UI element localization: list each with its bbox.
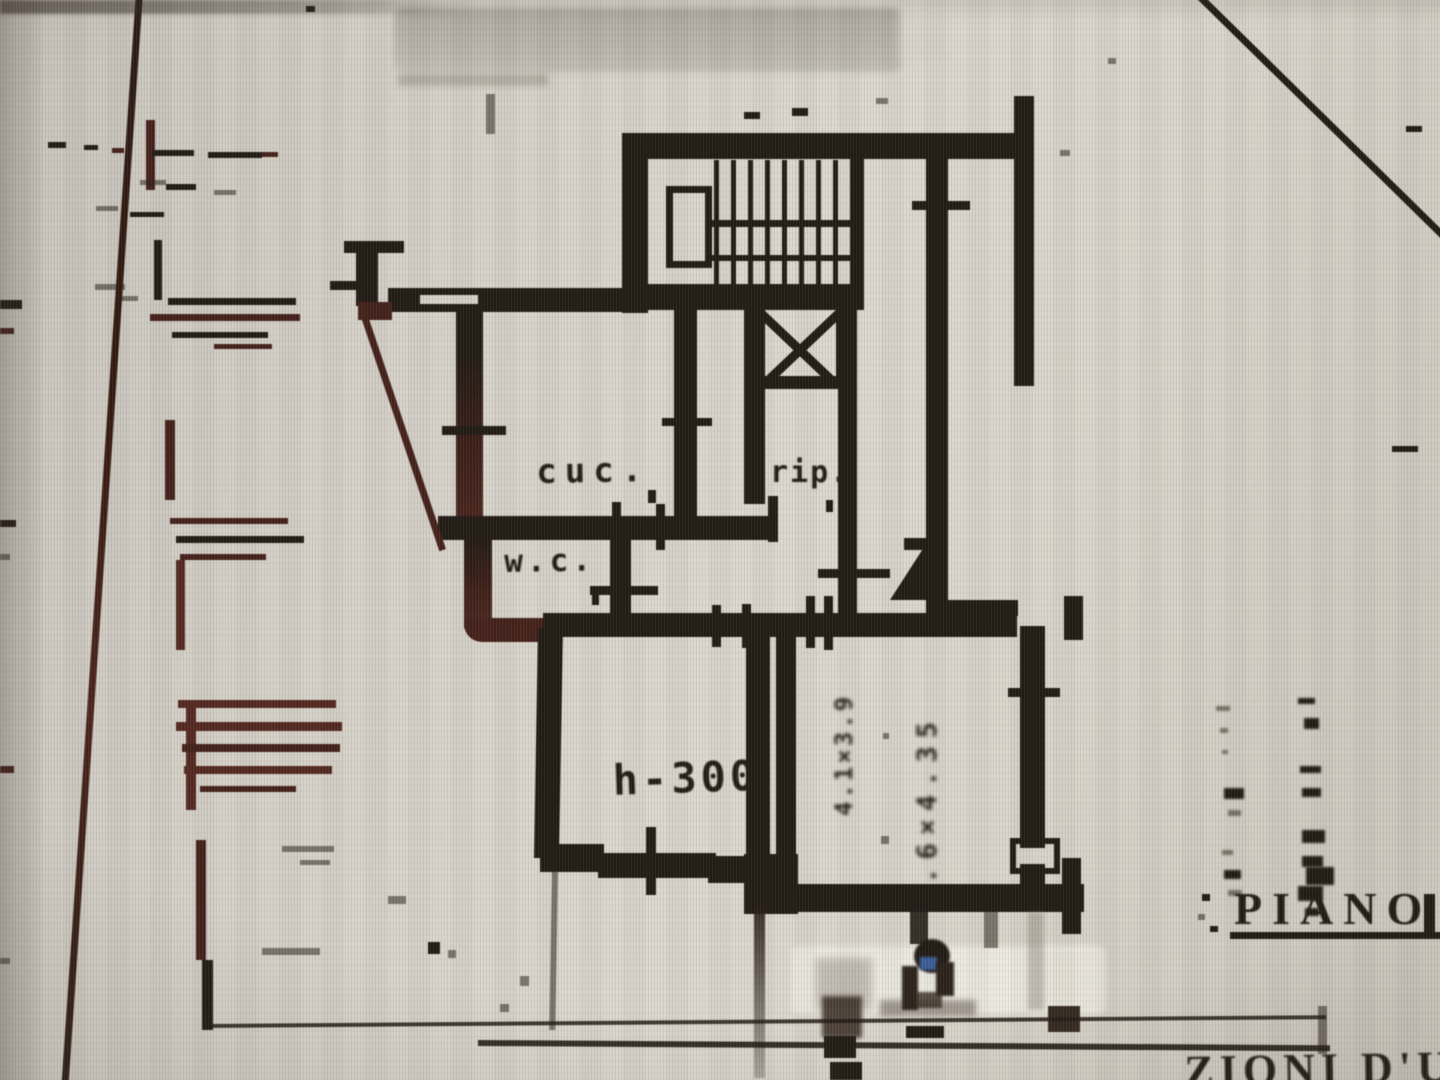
door-tick xyxy=(768,496,778,542)
margin-glyph xyxy=(1302,856,1323,867)
scratch-streak xyxy=(176,536,304,543)
door-tick xyxy=(824,596,833,650)
speck xyxy=(744,112,760,119)
edge-dash xyxy=(0,520,16,527)
window-sill-box xyxy=(1010,838,1060,874)
stair-right-stringer xyxy=(850,158,864,286)
speck xyxy=(876,98,888,104)
edge-dash xyxy=(0,328,14,334)
door-tick xyxy=(818,569,890,578)
balcony-cap xyxy=(344,241,404,253)
margin-glyph xyxy=(1216,706,1230,711)
room-label-ripostiglio: rip. xyxy=(770,458,850,488)
blur-smudge xyxy=(398,74,548,86)
scratch-dash xyxy=(130,212,164,217)
leftline-blob xyxy=(176,560,185,650)
scratch-dash xyxy=(112,148,124,153)
person-collar-blue xyxy=(920,957,937,970)
vertical-annotation-right: 1.6×4.35 xyxy=(914,714,941,908)
margin-glyph xyxy=(1224,870,1241,879)
scratch-streak xyxy=(200,786,296,792)
scratch-dash xyxy=(214,190,236,195)
reflection-dark-blob xyxy=(822,996,862,1038)
sheet-title-piano: PIANO xyxy=(1234,886,1432,932)
scratch-streak xyxy=(182,744,340,752)
scratch-streak xyxy=(214,344,272,349)
sheet-left-border xyxy=(61,0,143,1080)
scratch-streak xyxy=(178,700,336,708)
vertical-annotation-left: 4.1×3.9 xyxy=(832,694,856,816)
shadow-column xyxy=(1028,912,1044,1010)
line-below-corner xyxy=(549,872,558,1030)
wc-right-wall xyxy=(610,518,631,626)
person-torso xyxy=(916,992,942,1008)
h300-bottom-wall xyxy=(540,844,604,872)
scratch-streak xyxy=(184,766,332,774)
stair-top-wall xyxy=(622,133,1018,159)
right-end-cap-wall xyxy=(1014,96,1034,386)
door-tick xyxy=(646,827,656,895)
piano-colon-mark xyxy=(1198,914,1205,920)
stair-landing-box xyxy=(666,186,712,268)
scratch-dash xyxy=(152,150,194,156)
edge-dash xyxy=(0,766,14,773)
speck xyxy=(262,948,320,955)
elevator-shaft-box xyxy=(756,302,844,386)
scratch-streak xyxy=(172,332,268,338)
stair-mid-landing-bar xyxy=(712,255,854,261)
edge-dash xyxy=(0,554,10,560)
scratch-dash xyxy=(282,846,334,852)
scratch-dash xyxy=(166,184,196,190)
margin-glyph xyxy=(1222,750,1228,754)
scratch-dash xyxy=(96,206,118,211)
speck xyxy=(520,976,529,986)
speck xyxy=(1392,446,1418,452)
bottom-blob xyxy=(830,1062,862,1080)
scratch-dash xyxy=(84,145,98,150)
comma-mark xyxy=(826,500,833,512)
door-swing-leaf xyxy=(890,544,926,600)
speck xyxy=(486,94,495,134)
leftline-blob xyxy=(165,420,175,500)
window-tick xyxy=(912,201,970,210)
height-annotation: h-300 xyxy=(612,755,760,802)
kitchen-left-wall xyxy=(456,308,483,536)
piano-colon-mark xyxy=(1210,926,1218,932)
margin-glyph xyxy=(1298,698,1315,704)
wall-stub xyxy=(984,912,998,948)
white-redaction-ext xyxy=(1040,950,1104,1008)
speck xyxy=(428,942,440,954)
speck xyxy=(1060,150,1070,156)
margin-glyph xyxy=(1302,788,1321,797)
bottom-right-cap xyxy=(1062,858,1081,934)
margin-glyph xyxy=(1228,810,1241,816)
scratch-streak xyxy=(150,314,300,321)
scratch-streak xyxy=(176,722,342,731)
scratch-dash xyxy=(140,180,166,185)
mid-wall-right-cap xyxy=(1064,596,1083,640)
blur-redaction-top xyxy=(394,8,902,72)
door-tick xyxy=(662,418,712,426)
window-tick xyxy=(1008,688,1060,697)
speck xyxy=(1406,126,1422,132)
door-tick xyxy=(590,586,658,595)
margin-glyph xyxy=(1300,766,1321,773)
scratch-dash xyxy=(300,860,330,865)
door-tick xyxy=(656,504,665,550)
wc-left-wall xyxy=(464,516,492,628)
margin-glyph xyxy=(1222,850,1233,855)
blur-redaction-top-ext xyxy=(898,12,950,64)
leftline-blob xyxy=(154,240,162,300)
speck xyxy=(448,950,456,958)
person-shoulder-right xyxy=(936,962,954,996)
speck xyxy=(792,108,808,116)
margin-glyph xyxy=(1220,728,1228,733)
leftline-blob xyxy=(202,960,213,1030)
room2-right-wall xyxy=(1020,626,1045,848)
room-label-wc: w.c. xyxy=(504,545,595,578)
dot-mark xyxy=(883,733,889,739)
h300-bottom-wall xyxy=(598,853,716,878)
leftline-blob xyxy=(196,840,206,960)
scratch-streak xyxy=(180,554,266,560)
sheet-bottom-line xyxy=(206,1015,1326,1028)
margin-glyph xyxy=(1302,830,1325,843)
door-tick xyxy=(806,596,815,648)
balcony-dash xyxy=(330,281,364,290)
leftline-blob xyxy=(186,700,196,810)
floor-plan-layer: cuc.rip.w.c.h-3004.1×3.91.6×4.35PIANOZIO… xyxy=(0,0,1440,1080)
door-tick xyxy=(712,605,721,647)
line-below-plan xyxy=(754,906,765,1078)
scratch-dash xyxy=(208,152,262,158)
sheet-diagonal-fold xyxy=(1197,0,1440,244)
screen-photo: cuc.rip.w.c.h-3004.1×3.91.6×4.35PIANOZIO… xyxy=(0,0,1440,1080)
comma-mark xyxy=(592,594,599,605)
piano-colon-mark xyxy=(1202,894,1210,901)
speck xyxy=(388,896,406,904)
scratch-streak xyxy=(170,518,288,524)
mid-wall-thick xyxy=(946,600,1018,616)
margin-glyph xyxy=(1224,788,1244,799)
scratch-dash xyxy=(48,142,66,148)
window-tick xyxy=(442,426,506,435)
comma-mark xyxy=(648,490,656,503)
edge-dash xyxy=(0,300,22,309)
balcony-diagonal-wall xyxy=(359,310,446,551)
wall-core-light xyxy=(420,295,478,304)
kitchen-right-wall xyxy=(674,308,697,526)
room-label-cucina: cuc. xyxy=(536,453,650,489)
edge-dash xyxy=(0,958,10,964)
scratch-dash xyxy=(262,152,278,157)
stair-mid-landing-bar xyxy=(712,220,854,227)
h300-bottom-wall xyxy=(708,856,752,883)
wall-junction-blob xyxy=(744,854,798,914)
dot-mark xyxy=(881,836,889,844)
margin-glyph xyxy=(1304,718,1319,729)
speck xyxy=(1108,58,1116,64)
speck xyxy=(500,1004,509,1012)
h300-left-wall xyxy=(534,628,563,858)
speck xyxy=(306,6,315,12)
bottom-blob xyxy=(906,1026,944,1038)
wall-stub xyxy=(910,906,928,944)
cutoff-caption-fragment: ZIONI D'U xyxy=(1184,1045,1440,1080)
scratch-streak xyxy=(168,298,296,305)
